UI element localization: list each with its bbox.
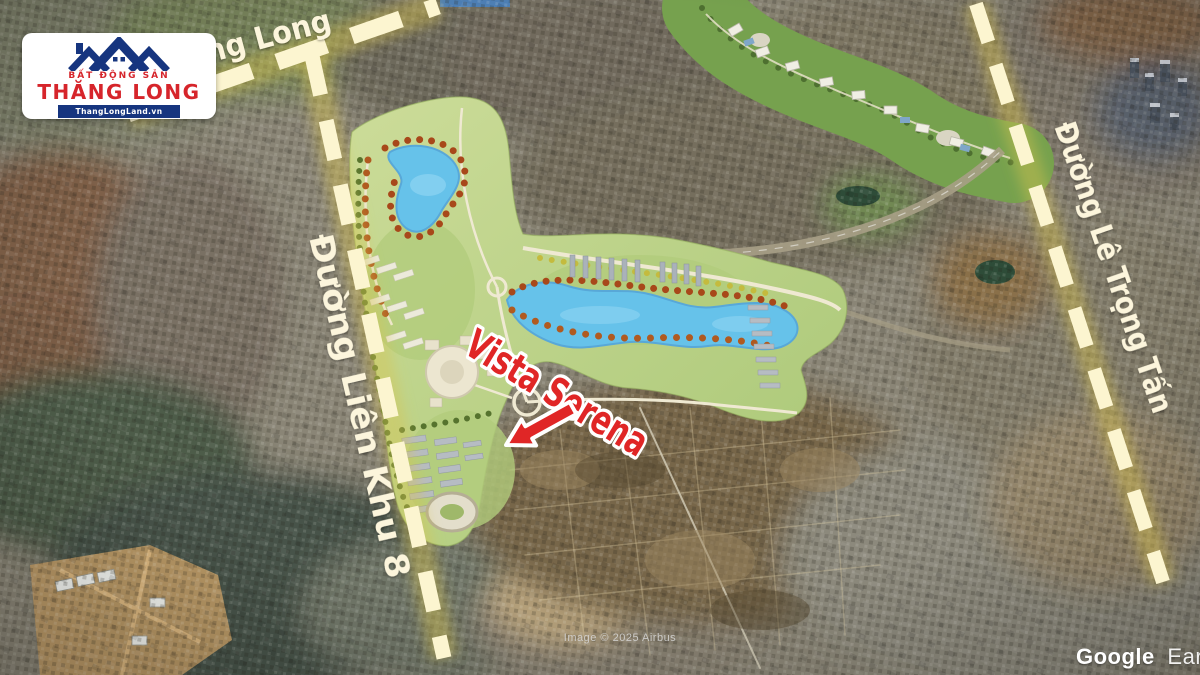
house-roof-icon — [59, 37, 179, 71]
logo-website: ThangLongLand.vn — [58, 105, 181, 118]
watermark-earth: Earth — [1167, 644, 1200, 669]
imagery-attribution: Image © 2025 Airbus — [564, 632, 676, 644]
watermark-google: Google — [1076, 644, 1155, 669]
brand-logo: BẤT ĐỘNG SẢN THĂNG LONG ThangLongLand.vn — [22, 33, 216, 119]
logo-brand: THĂNG LONG — [37, 82, 200, 103]
google-earth-viewport[interactable]: ăng Long Đường Liên Khu 8 Đường Lê Trọng… — [0, 0, 1200, 675]
google-earth-watermark: Google Earth — [1076, 644, 1200, 669]
